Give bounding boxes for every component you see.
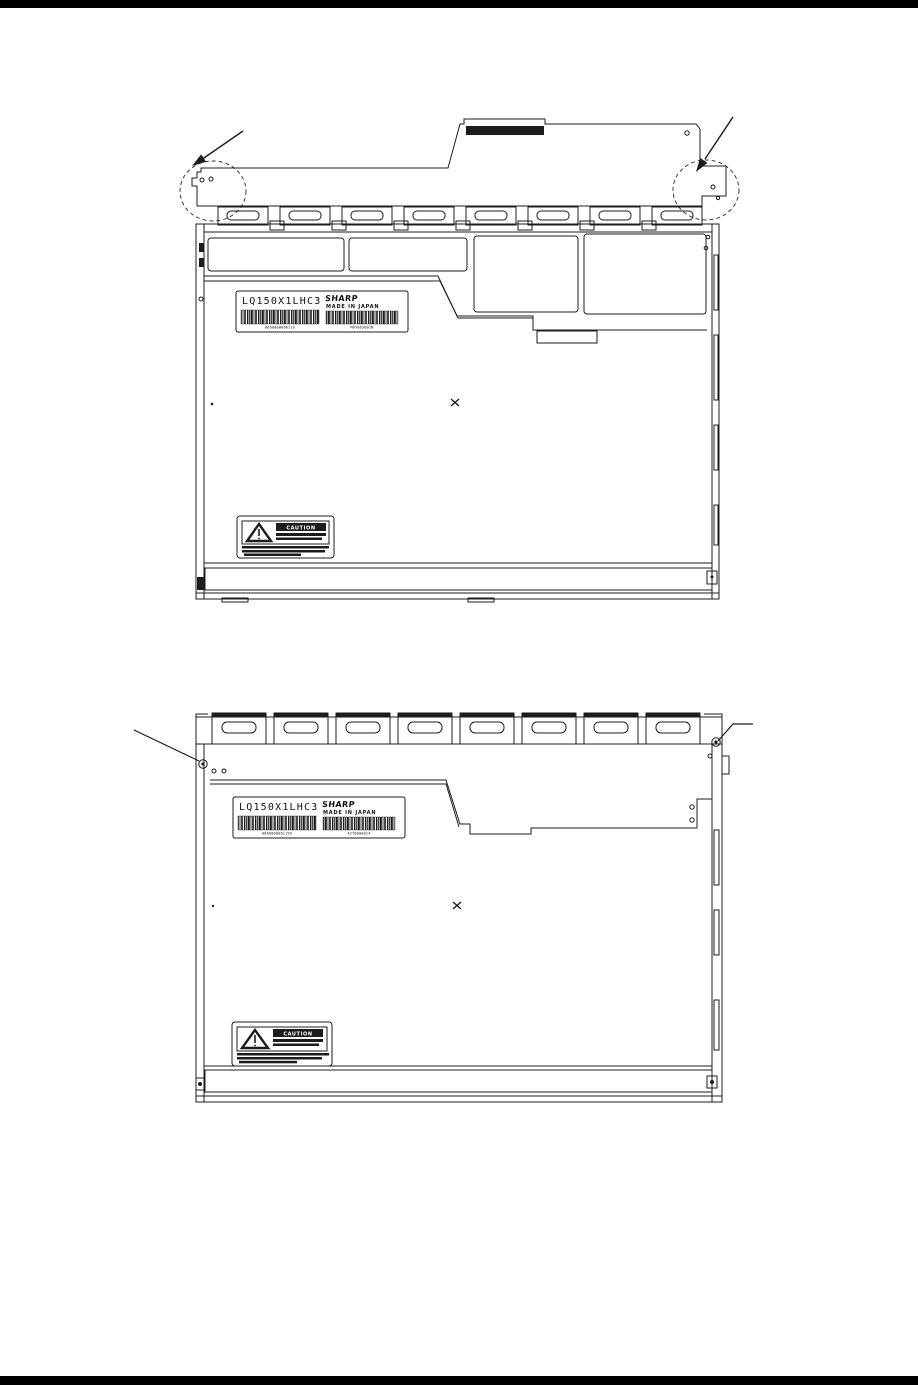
mounting-tab-row [196,713,722,744]
mounting-tab-row [218,207,702,230]
mounting-tab [528,207,578,225]
warning-triangle-icon [242,1030,268,1048]
serial-text: 0660000606110 [265,326,295,330]
mounting-tab [280,207,330,225]
rail-slot [714,1000,719,1050]
caution-text-bar [242,550,325,553]
screw-hole [200,178,204,182]
screw-head [712,738,720,746]
mounting-tab [342,207,392,225]
sharp-logo-text: SHARP [322,800,356,809]
corner-piece-left [196,714,208,744]
origin-text: MADE IN JAPAN [326,304,379,310]
backlight-bar [205,568,712,590]
screw-hole [706,235,710,239]
mounting-tab [218,207,268,225]
backlight-bar [205,1070,712,1092]
screw-hole [199,297,203,301]
rail-slot [714,335,718,400]
caution-title: CAUTION [286,525,315,531]
spec-label: LQ150X1LHC3 SHARP MADE IN JAPAN 06600006… [236,291,408,332]
caution-text-bar [239,1061,297,1064]
caution-label: CAUTION [237,516,334,558]
figure-canvas: LQ150X1LHC3 SHARP MADE IN JAPAN 06600006… [0,0,918,1385]
callout-arrow-left-icon [192,131,243,166]
rail-slot [714,830,719,885]
spec-label: LQ150X1LHC3 SHARP MADE IN JAPAN 06600000… [233,797,405,838]
pcb-shield [349,238,467,271]
mounting-tab [584,713,638,744]
model-text: LQ150X1LHC3 [242,296,321,307]
hinge-mark [199,243,204,252]
connector-strip [466,126,544,135]
caution-text-bar [273,1039,323,1042]
rail-slot [714,910,719,955]
bottom-rule [0,1376,918,1385]
center-mark [453,902,461,909]
callout-arrow-right-icon [696,117,733,172]
connector-tab [537,331,597,343]
screw-hole [209,177,213,181]
mounting-tab [590,207,640,225]
mounting-tab [212,713,266,744]
serial-text: M6Y863001N [350,326,373,330]
caution-text-bar [276,538,322,541]
barcode [241,310,319,324]
pcb-shield [208,238,344,271]
document-page: LQ150X1LHC3 SHARP MADE IN JAPAN 06600006… [0,0,918,1385]
origin-text: MADE IN JAPAN [323,810,376,816]
serial-text: 42T0000014 [347,832,370,836]
warning-triangle-icon [247,524,271,541]
screw-hole [690,805,694,809]
top-rule [0,0,918,8]
mounting-tab [460,713,514,744]
screw-head [199,760,207,768]
mounting-tab [466,207,516,225]
pcb-flap-outline [192,119,726,206]
rail-slot [714,425,718,470]
caution-text-bar [244,554,301,557]
screw-hole [690,818,694,822]
mounting-tab [646,713,700,744]
serial-text: 0660000061199 [262,832,292,836]
screw-hole [711,185,715,189]
mounting-tab [404,207,454,225]
caution-label: CAUTION [232,1022,332,1066]
screw-hole [685,131,689,135]
screw-hole [222,769,226,773]
rail-slot [714,505,718,545]
alignment-dot [211,403,214,406]
caution-text-bar [242,546,329,549]
leader-line-right [718,724,753,741]
screw-hole [212,769,216,773]
callout-circle-left [180,161,246,221]
mounting-tab [336,713,390,744]
caution-title: CAUTION [283,1031,312,1037]
caution-text-bar [237,1057,322,1060]
pcb-shield [474,236,578,312]
corner-block [197,577,204,590]
mounting-tab [274,713,328,744]
mounting-tab [652,207,702,225]
screw-hole [708,754,712,758]
center-mark [451,399,459,406]
pcb-shield [584,234,706,314]
panel-outline [196,744,722,1102]
hinge-mark [199,258,204,267]
mounting-tab [398,713,452,744]
panel-outline [196,224,719,599]
alignment-dot [212,905,214,907]
mounting-tab [522,713,576,744]
model-text: LQ150X1LHC3 [239,802,318,813]
caution-text-bar [276,533,326,536]
rail-bump [722,756,729,774]
sharp-logo-text: SHARP [325,294,359,303]
leader-line-left [134,730,199,761]
barcode [323,817,395,830]
barcode [326,311,398,324]
lcd-front-view-diagram: LQ150X1LHC3 SHARP MADE IN JAPAN 06600000… [134,713,753,1102]
rail-slot [714,255,718,310]
barcode [238,816,316,830]
screw-hole [716,196,719,199]
caution-text-bar [273,1044,319,1047]
caution-text-bar [237,1053,329,1056]
lcd-rear-view-diagram: LQ150X1LHC3 SHARP MADE IN JAPAN 06600006… [180,117,739,602]
